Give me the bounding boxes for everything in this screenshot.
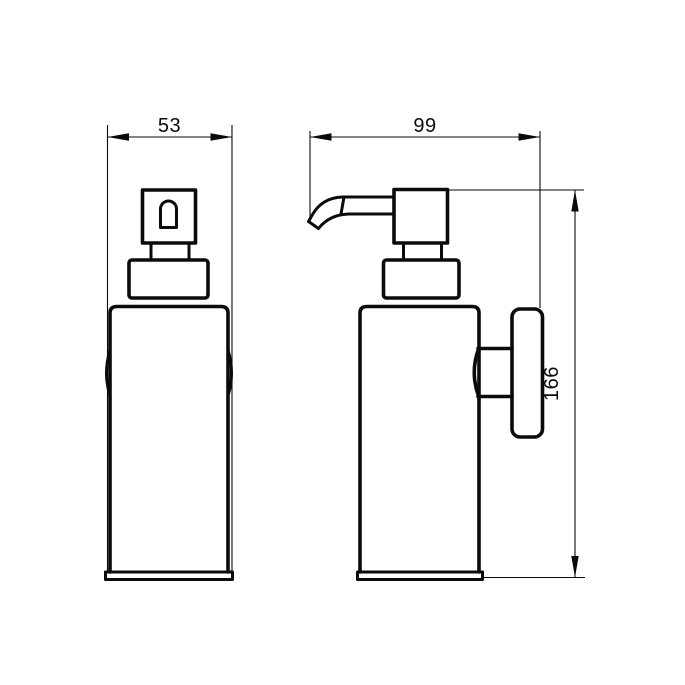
dimension-166: 166 — [449, 190, 585, 578]
front-pump-collar — [129, 260, 208, 298]
dim-166-arrow-top — [571, 190, 578, 212]
front-view: 53 — [106, 115, 233, 580]
dim-53-value: 53 — [158, 115, 181, 137]
side-spout-joint-line — [341, 197, 344, 214]
front-nozzle-slot — [161, 201, 177, 228]
dim-166-arrow-bottom — [571, 556, 578, 578]
front-base-ring — [106, 572, 233, 580]
side-pump-head — [394, 190, 448, 244]
dim-99-value: 99 — [413, 115, 436, 137]
side-base-ring — [358, 572, 483, 580]
dim-99-arrow-left — [310, 133, 332, 141]
dim-53-arrow-left — [108, 133, 130, 141]
dispenser-drawing-svg: 53 99 — [0, 0, 685, 685]
front-pump-head — [143, 190, 196, 243]
dim-53-arrow-right — [211, 133, 233, 141]
dim-99-arrow-right — [519, 133, 541, 141]
technical-drawing-canvas: 53 99 — [0, 0, 685, 685]
side-pump-collar — [384, 260, 460, 298]
dimension-53: 53 — [108, 115, 233, 571]
wall-plate — [512, 309, 543, 437]
dim-166-value: 166 — [541, 366, 563, 401]
side-spout — [309, 197, 395, 229]
front-bottle-body — [110, 307, 228, 573]
dimension-99: 99 — [310, 115, 540, 308]
side-bottle-body — [360, 307, 479, 573]
side-view: 99 166 — [309, 115, 586, 580]
